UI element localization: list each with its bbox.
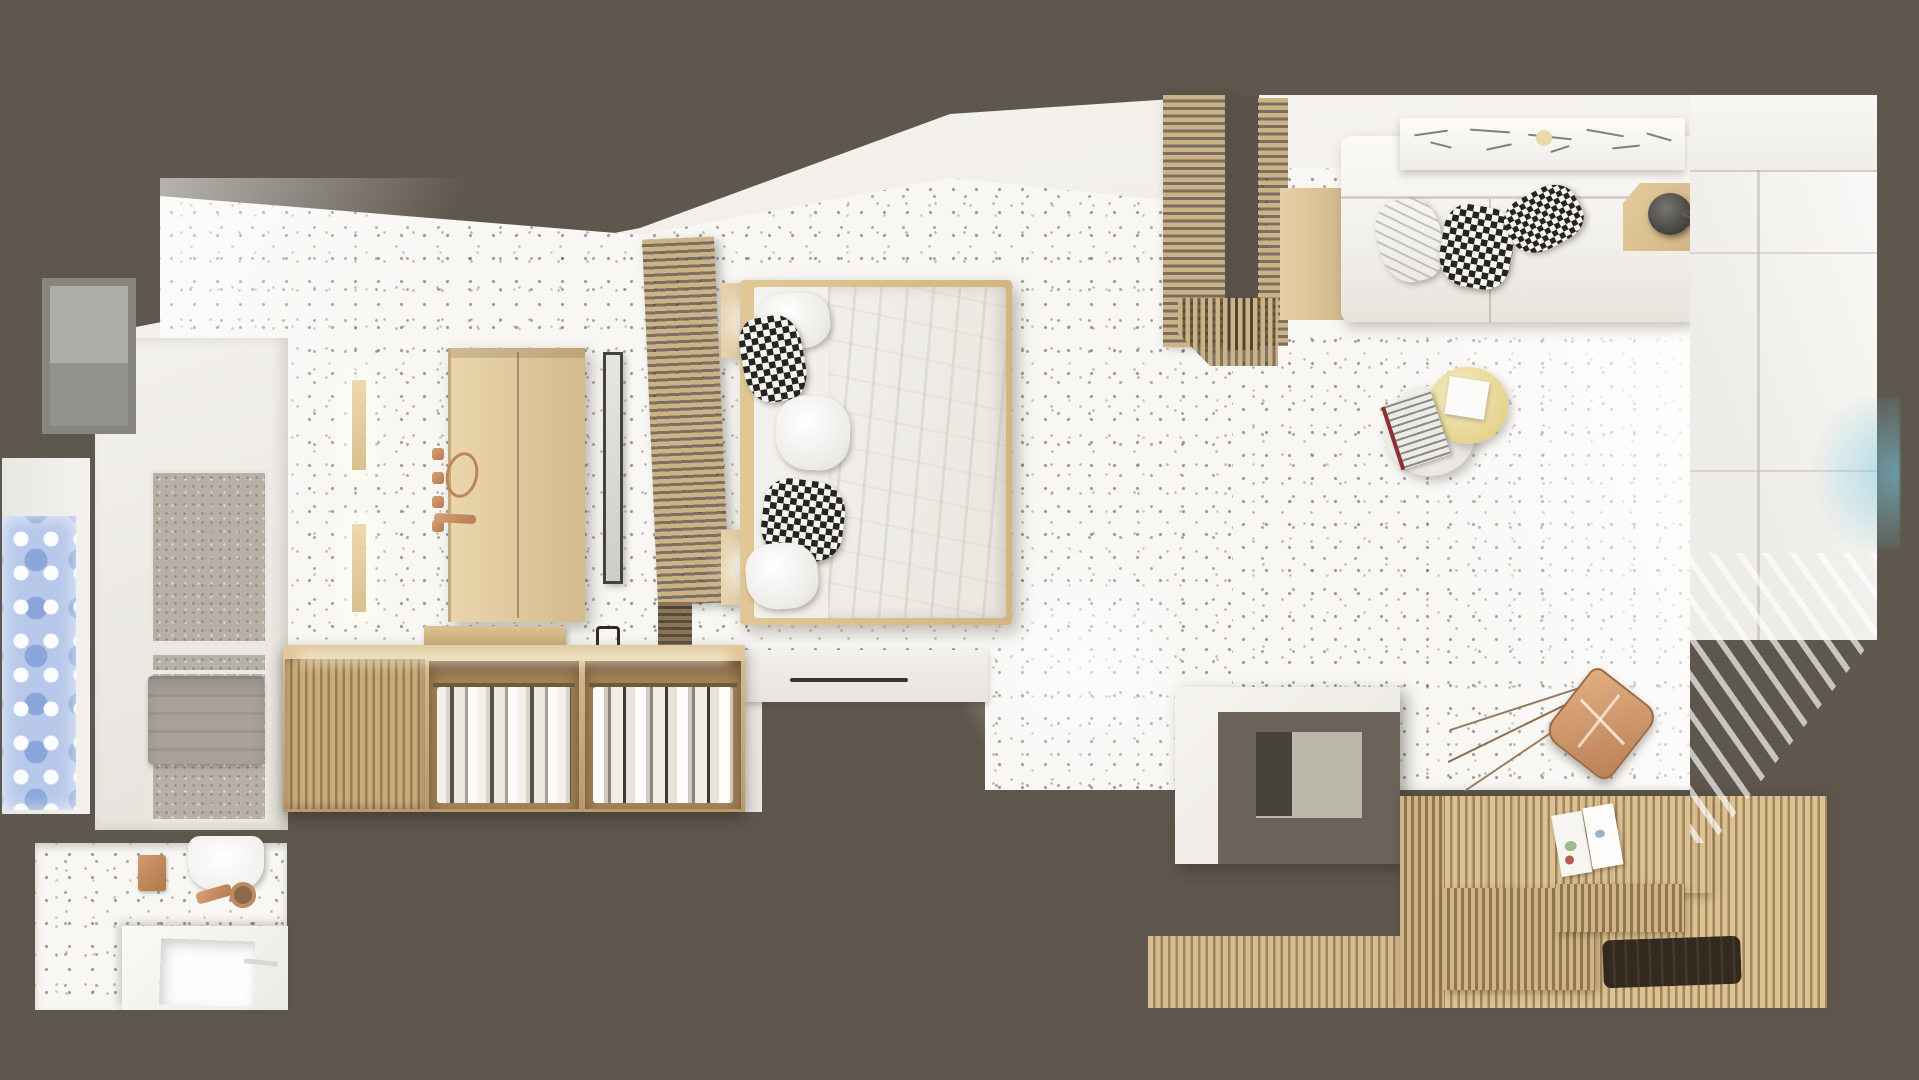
copper-hook-2 [432, 472, 444, 484]
shower-floor-upper [150, 470, 268, 644]
deco-window-glass [2, 516, 76, 810]
bathroom-mirror [138, 855, 166, 891]
deck-bench-small [1556, 884, 1684, 932]
deck-extension-bench [1148, 936, 1400, 1008]
closet-clothes-1 [437, 687, 571, 803]
wall-light-upper [352, 380, 366, 470]
window-mullion-h1 [1690, 252, 1877, 254]
basin [159, 938, 255, 1007]
closet-unit [283, 645, 745, 812]
towel [148, 676, 264, 764]
sofa-wood-platform [1280, 188, 1344, 320]
art-accent-dot [1536, 130, 1552, 146]
closet-sliding-door [285, 659, 425, 809]
pillow-white-2 [774, 394, 852, 472]
window-sill [1690, 95, 1877, 172]
closet-glow [299, 653, 729, 662]
wardrobe-top-edge [451, 348, 585, 358]
deck-step-left [1400, 796, 1444, 1008]
duvet [828, 287, 1006, 618]
door-track [790, 678, 908, 682]
platform-step [745, 650, 988, 702]
closet-bay-2 [585, 661, 741, 809]
towel-rail [146, 670, 266, 674]
wardrobe-door-seam [517, 352, 519, 618]
light-flare [1790, 398, 1900, 548]
deck-magazine [1551, 803, 1625, 879]
copper-hook-3 [432, 496, 444, 508]
paper-on-table [1444, 376, 1489, 420]
wall-light-lower [352, 524, 366, 612]
dressing-mirror [603, 352, 623, 584]
wall-niche [42, 278, 136, 434]
closet-rod-2 [589, 683, 737, 687]
closet-rod-1 [433, 683, 575, 687]
chair-seat [1542, 664, 1661, 784]
pillow-white-3 [744, 541, 820, 612]
art-shelf [1400, 118, 1685, 170]
service-column [1175, 687, 1400, 864]
closet-bay-1 [429, 661, 579, 809]
butterfly-chair [1538, 668, 1658, 783]
copper-hook-1 [432, 448, 444, 460]
render-canvas: { "scene": { "title": "Top-down 3D rende… [0, 0, 1919, 1080]
floor-drain [230, 882, 256, 908]
closet-clothes-2 [593, 687, 733, 803]
toilet [188, 836, 264, 890]
column-slot [1256, 732, 1292, 816]
deck-mat [1602, 936, 1742, 989]
